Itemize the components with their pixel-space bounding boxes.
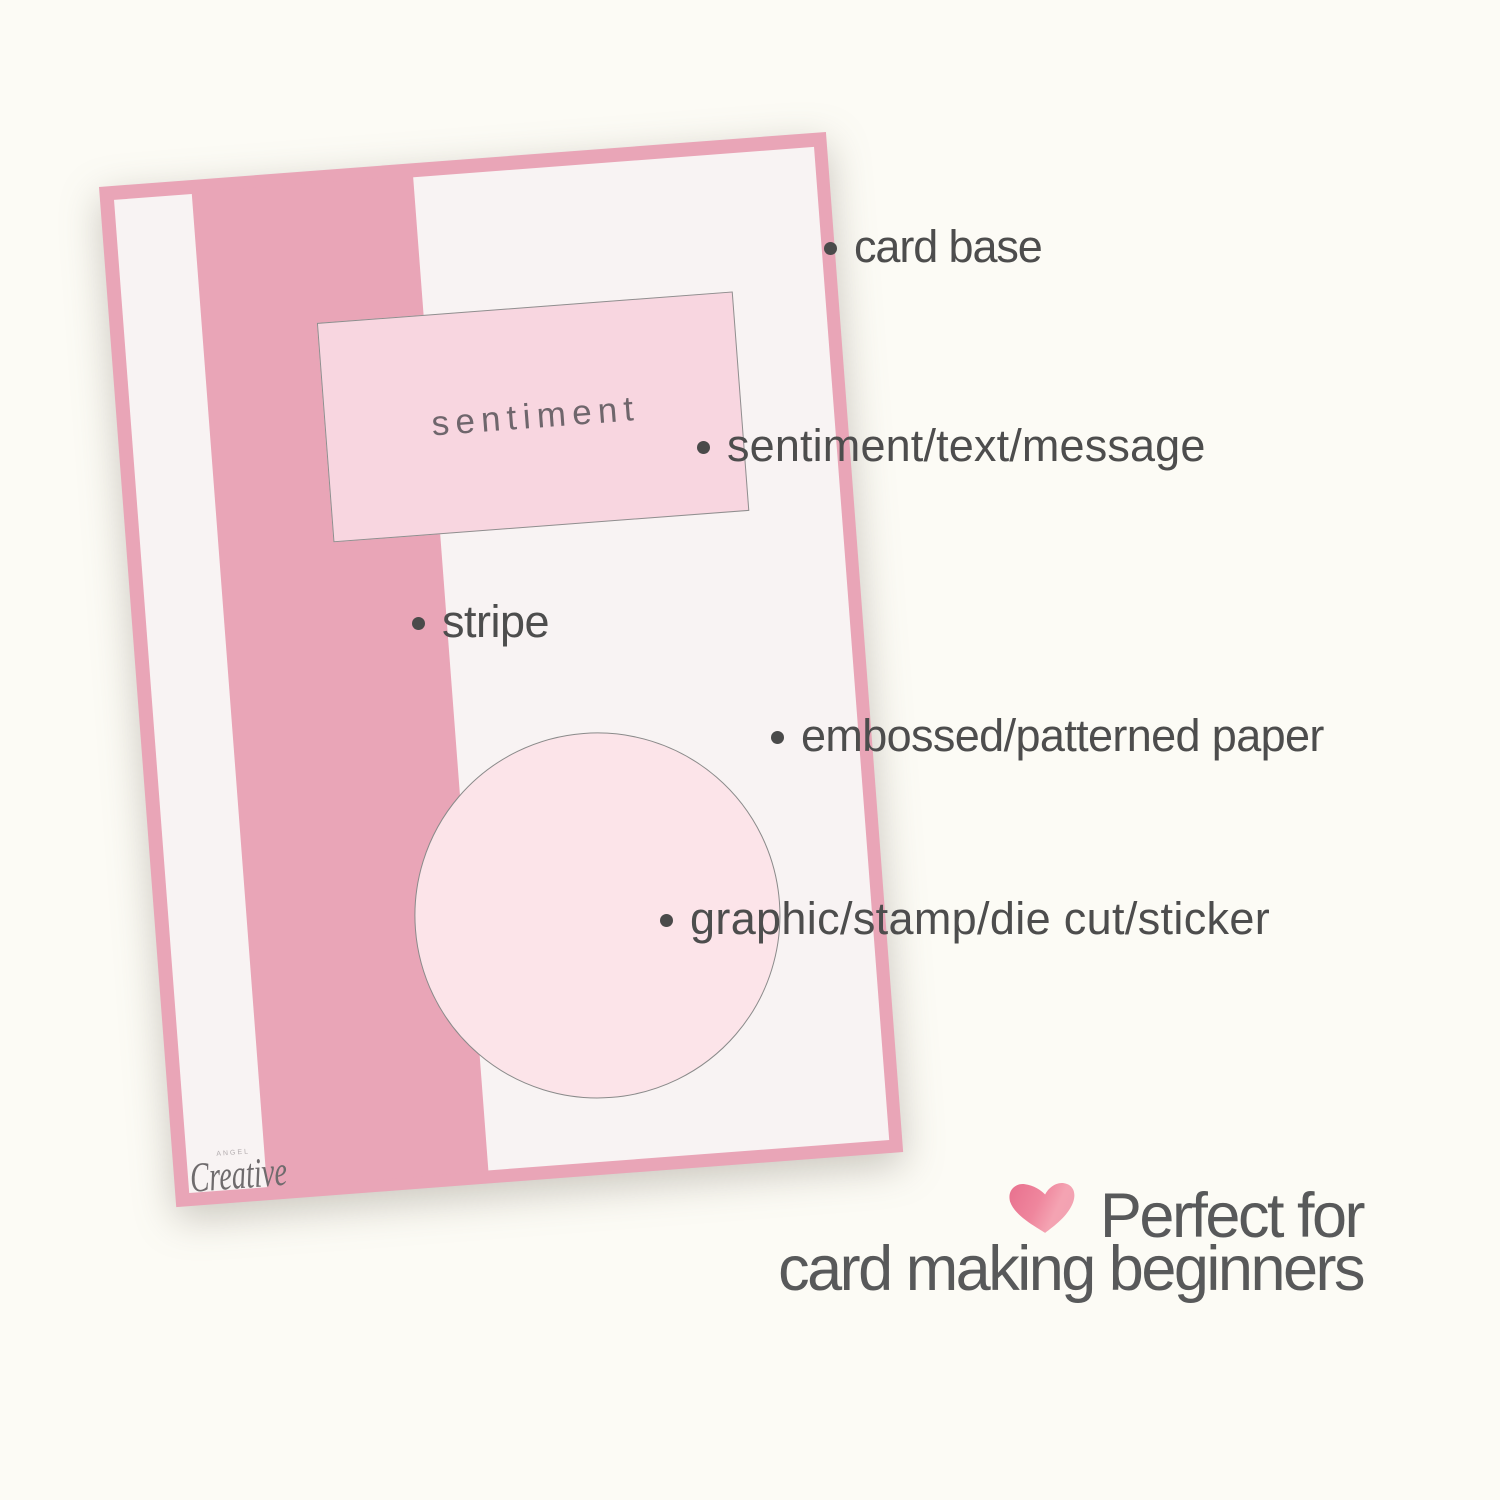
svg-text:Creative: Creative bbox=[188, 1149, 288, 1202]
